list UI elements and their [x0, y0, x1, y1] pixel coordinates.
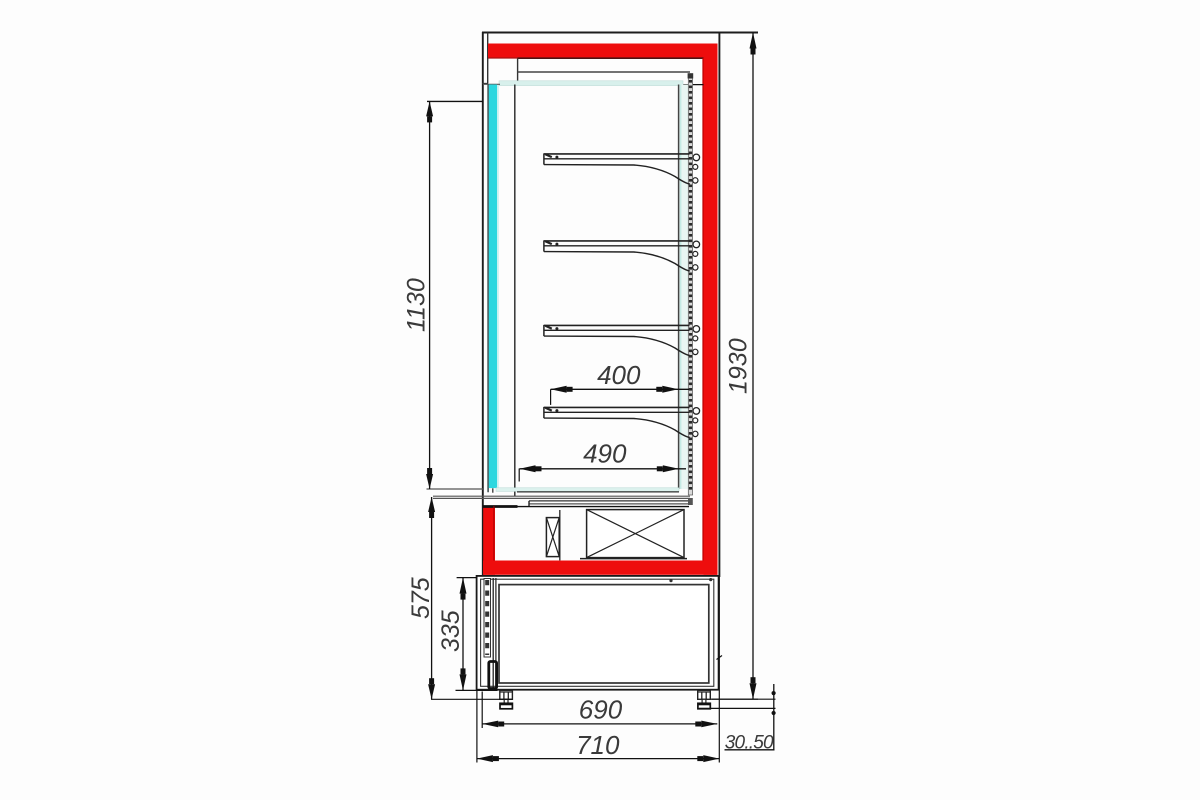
svg-text:490: 490: [583, 439, 627, 469]
svg-text:1130: 1130: [402, 278, 430, 332]
svg-text:335: 335: [437, 610, 465, 652]
svg-text:690: 690: [579, 695, 623, 725]
svg-text:400: 400: [597, 360, 641, 390]
svg-text:30..50: 30..50: [725, 733, 774, 754]
svg-text:1930: 1930: [725, 338, 753, 394]
svg-text:710: 710: [576, 730, 620, 760]
svg-text:575: 575: [407, 577, 435, 619]
